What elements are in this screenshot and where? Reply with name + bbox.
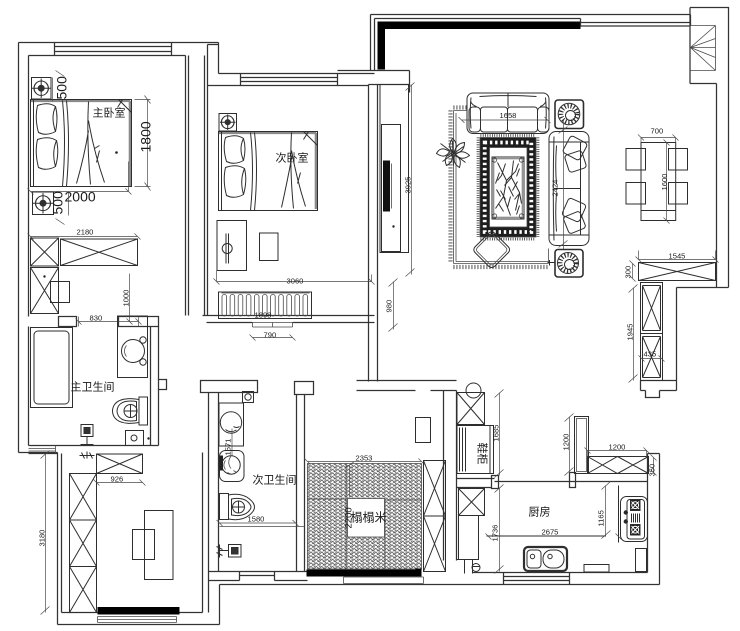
svg-text:1580: 1580 — [248, 515, 265, 524]
svg-text:3180: 3180 — [38, 530, 47, 547]
svg-text:1200: 1200 — [562, 434, 571, 451]
svg-text:1600: 1600 — [660, 174, 669, 191]
svg-text:830: 830 — [90, 314, 103, 323]
svg-text:3925: 3925 — [404, 177, 413, 194]
svg-text:主卫生间: 主卫生间 — [71, 380, 115, 394]
svg-text:次卫生间: 次卫生间 — [253, 473, 297, 487]
svg-text:926: 926 — [111, 475, 124, 484]
svg-text:1545: 1545 — [669, 252, 686, 261]
svg-text:1898: 1898 — [255, 311, 272, 320]
svg-text:1685: 1685 — [492, 425, 501, 442]
svg-text:3060: 3060 — [287, 277, 304, 286]
svg-text:350: 350 — [648, 464, 657, 477]
svg-text:1658: 1658 — [500, 111, 517, 120]
svg-text:700: 700 — [651, 127, 664, 136]
svg-text:1571: 1571 — [224, 439, 233, 456]
svg-text:1000: 1000 — [122, 290, 131, 307]
svg-text:1800: 1800 — [138, 121, 154, 152]
svg-text:2424: 2424 — [551, 180, 560, 197]
svg-text:500: 500 — [50, 191, 66, 215]
svg-text:2180: 2180 — [77, 228, 94, 237]
svg-text:300: 300 — [624, 266, 633, 279]
svg-text:435: 435 — [644, 350, 657, 359]
svg-text:1165: 1165 — [597, 510, 606, 526]
svg-text:1945: 1945 — [626, 324, 635, 341]
svg-text:790: 790 — [264, 331, 277, 340]
svg-text:1736: 1736 — [491, 525, 500, 542]
svg-text:主卧室: 主卧室 — [93, 106, 126, 120]
svg-text:980: 980 — [385, 300, 394, 313]
svg-text:1200: 1200 — [609, 443, 626, 452]
svg-text:2675: 2675 — [542, 528, 559, 537]
svg-text:500: 500 — [54, 76, 70, 100]
svg-text:2000: 2000 — [65, 189, 96, 205]
svg-text:厨房: 厨房 — [529, 506, 551, 519]
svg-text:2200: 2200 — [344, 507, 355, 528]
svg-text:鞋柜: 鞋柜 — [476, 443, 490, 465]
svg-text:榻榻米: 榻榻米 — [351, 511, 387, 525]
svg-text:2353: 2353 — [356, 454, 373, 463]
svg-text:次卧室: 次卧室 — [276, 151, 309, 165]
